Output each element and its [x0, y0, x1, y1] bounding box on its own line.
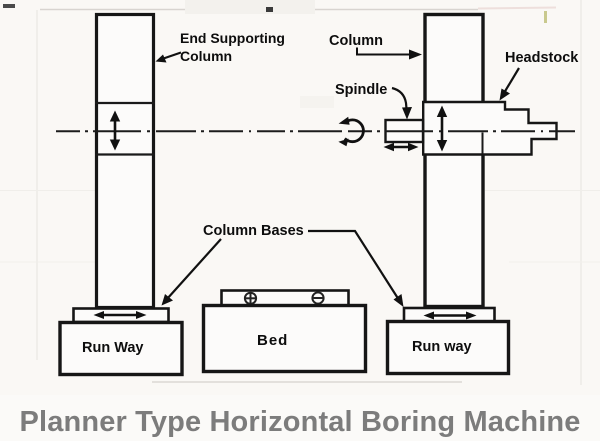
- svg-text:Run Way: Run Way: [82, 340, 144, 356]
- svg-text:Bed: Bed: [257, 332, 288, 349]
- svg-text:Planner Type Horizontal Boring: Planner Type Horizontal Boring Machine: [20, 406, 581, 438]
- svg-text:Column Bases: Column Bases: [203, 223, 304, 239]
- svg-text:End Supporting: End Supporting: [180, 30, 285, 46]
- svg-text:Headstock: Headstock: [505, 50, 579, 66]
- svg-text:Column: Column: [329, 33, 383, 49]
- svg-text:Spindle: Spindle: [335, 82, 387, 98]
- svg-text:Column: Column: [180, 48, 232, 64]
- svg-text:Run way: Run way: [412, 339, 472, 355]
